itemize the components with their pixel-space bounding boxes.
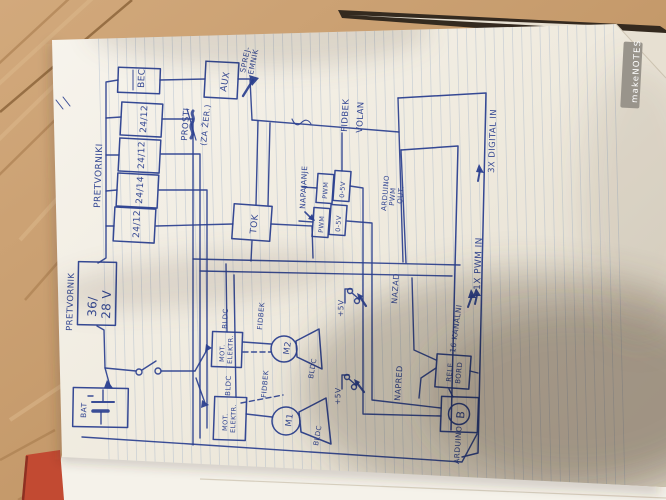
bec-label: BEC (137, 68, 148, 88)
converter-1-label: 24/12 (139, 105, 150, 133)
converter-2-label: 24/12 (137, 141, 147, 169)
nazad-5v-label: +5V (336, 299, 346, 317)
motor-m2-label: M2 (282, 341, 294, 356)
esc2-label-2: ELEKTR. (229, 404, 238, 433)
steering-feedback-label: FIDBEK (340, 99, 352, 133)
battery-label: BAT (79, 402, 89, 418)
esc1-label-2: ELEKTR. (226, 335, 235, 364)
module-a-pwm-label: PWM (321, 181, 330, 199)
motor-m1-label: M1 (284, 413, 296, 428)
arduino-pwm-out-3: OUT. (396, 186, 406, 205)
module-a-05v-label: 0-5V (338, 181, 347, 198)
photo-of-schematic: PRETVORNIKI BEC 24/12 24/12 24/14 24/12 … (0, 0, 666, 500)
converter-4-label: 24/12 (132, 210, 143, 238)
watermark: makeNOTES (620, 40, 643, 109)
esc1-bldc-label: BLDC (221, 308, 230, 329)
module-b-05v-label: 0-5V (334, 215, 343, 232)
module-b-pwm-label: PWM (317, 215, 326, 233)
steering-volan-label: VOLAN (355, 101, 367, 133)
esc2-bldc-label: BLDC (224, 375, 233, 396)
red-spine (22, 450, 64, 500)
converter-3-label: 24/14 (135, 176, 146, 204)
